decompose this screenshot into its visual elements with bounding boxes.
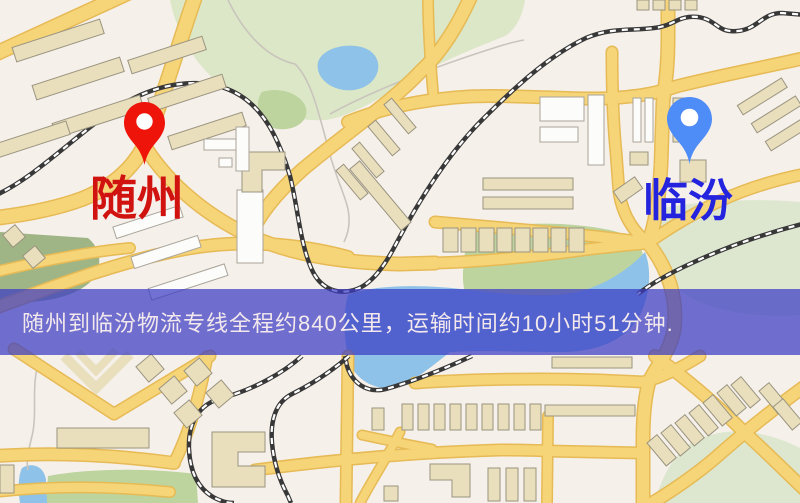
destination-city-label: 临汾: [643, 179, 733, 224]
map-canvas: [0, 0, 800, 503]
route-info-text: 随州到临汾物流专线全程约840公里，运输时间约10小时51分钟.: [22, 306, 674, 338]
pin-hole: [681, 109, 699, 127]
origin-pin red-map-pin[interactable]: [122, 101, 167, 169]
pin-body: [667, 97, 712, 164]
origin-city-label: 随州: [90, 177, 184, 224]
pin-body: [124, 102, 165, 165]
pin-hole: [136, 113, 152, 129]
destination-pin blue-map-pin[interactable]: [665, 96, 714, 168]
route-info-banner: 随州到临汾物流专线全程约840公里，运输时间约10小时51分钟.: [0, 289, 800, 355]
map-screenshot: 随州 临汾 随州到临汾物流专线全程约840公里，运输时间约10小时51分钟.: [0, 0, 800, 503]
